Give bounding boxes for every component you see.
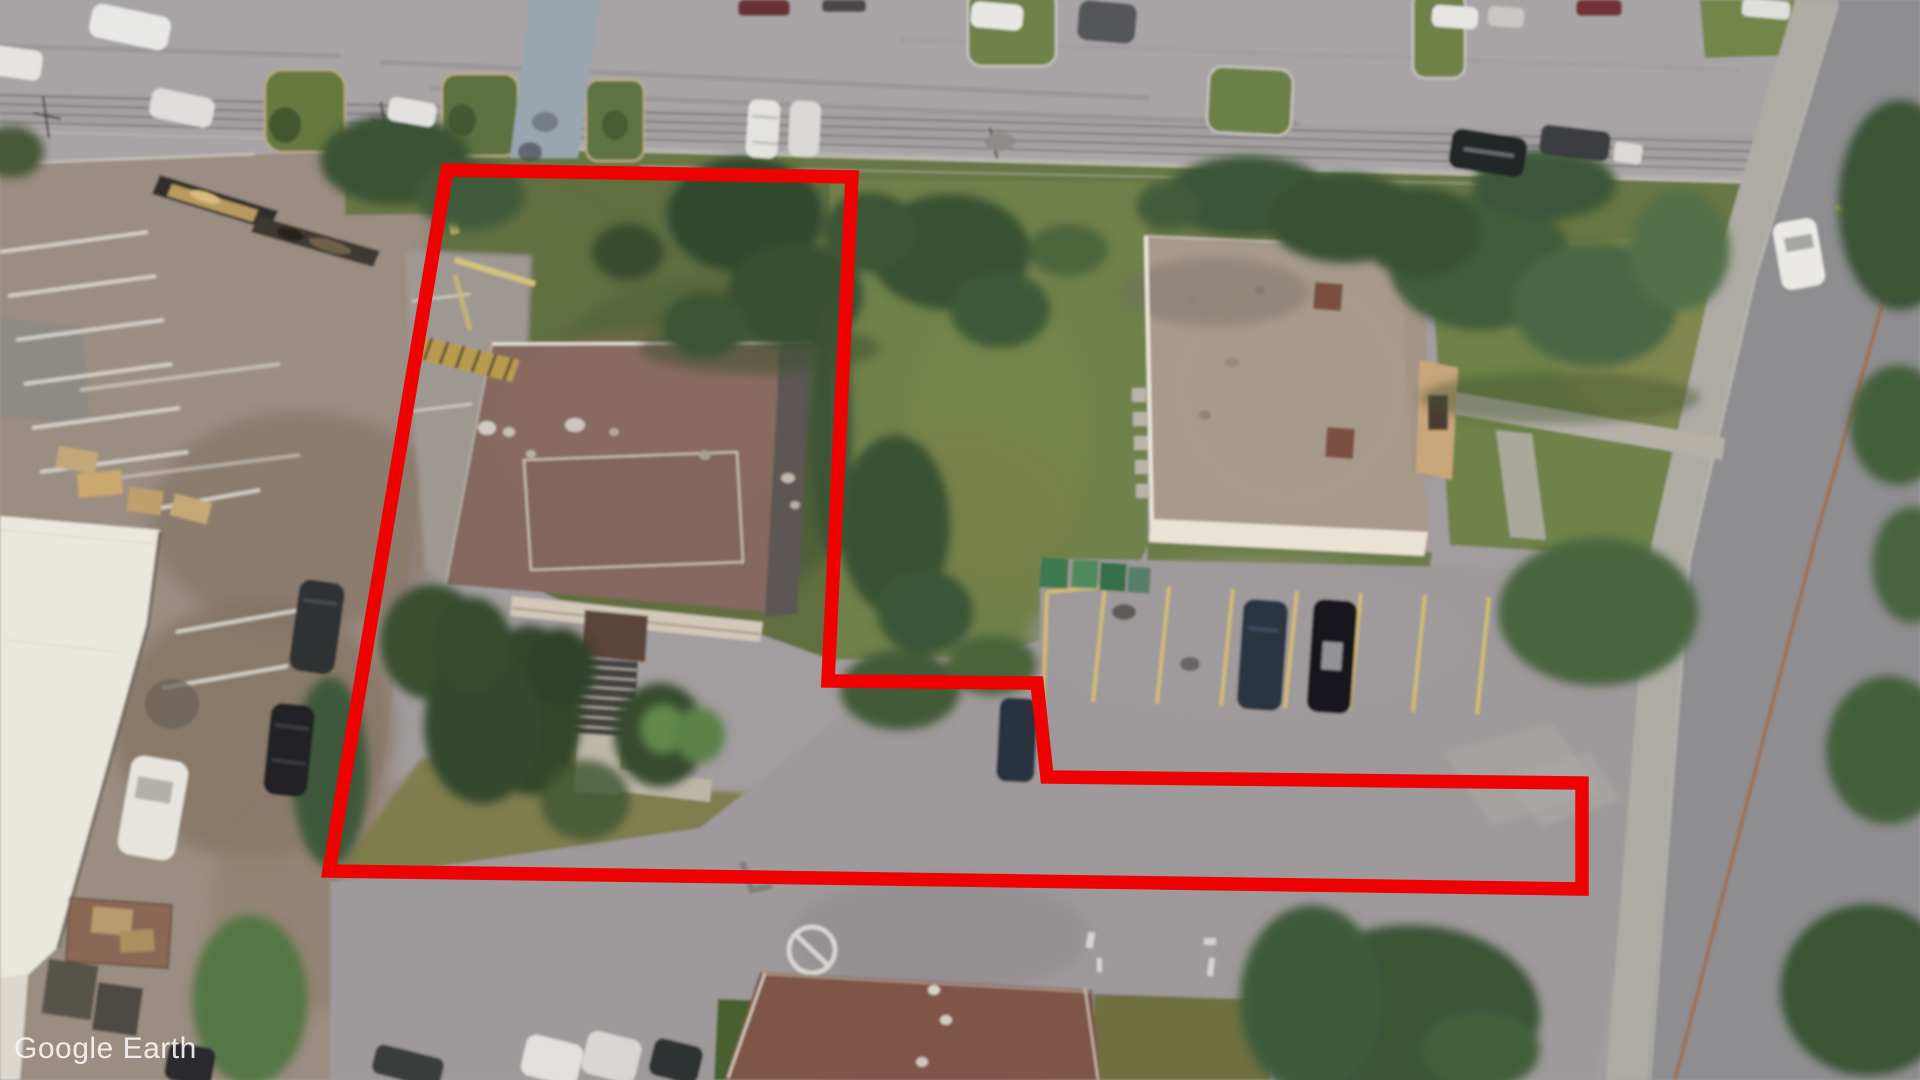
- svg-text:Google Earth: Google Earth: [14, 1032, 197, 1065]
